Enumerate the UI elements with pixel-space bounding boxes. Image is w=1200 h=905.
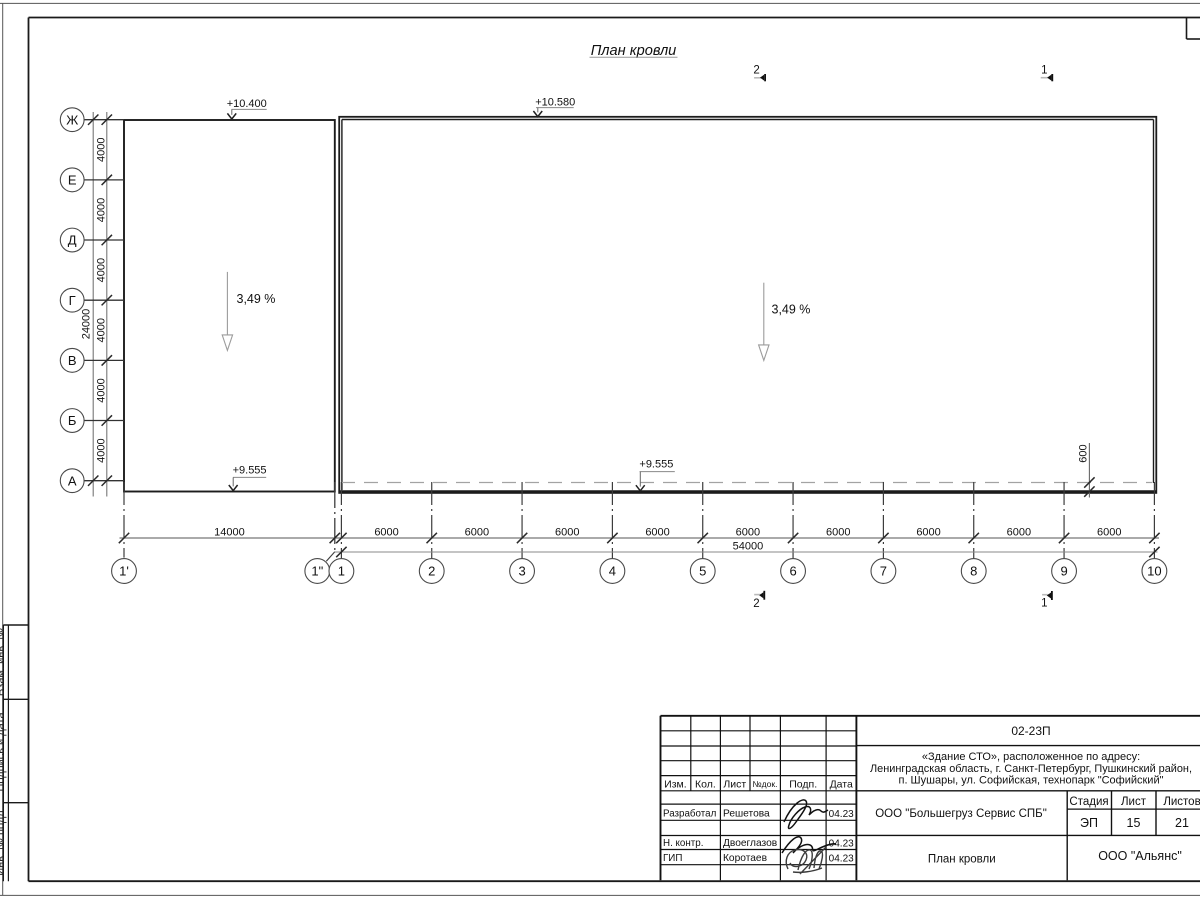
- svg-text:+10.580: +10.580: [535, 97, 575, 109]
- svg-text:8: 8: [970, 564, 977, 579]
- svg-text:2: 2: [753, 598, 759, 610]
- svg-text:4000: 4000: [95, 438, 107, 462]
- svg-text:Листов: Листов: [1163, 796, 1200, 808]
- svg-text:ООО "Альянс": ООО "Альянс": [1098, 849, 1182, 863]
- svg-text:Ленинградская область, г. Санк: Ленинградская область, г. Санкт-Петербур…: [870, 763, 1192, 775]
- svg-text:В: В: [68, 353, 77, 368]
- svg-text:4000: 4000: [95, 378, 107, 402]
- svg-text:24000: 24000: [80, 309, 92, 340]
- svg-text:Ж: Ж: [66, 112, 78, 127]
- svg-text:6000: 6000: [645, 526, 669, 538]
- svg-text:Е: Е: [68, 172, 77, 187]
- svg-text:Дата: Дата: [830, 779, 853, 791]
- svg-text:4000: 4000: [95, 318, 107, 342]
- svg-text:1': 1': [119, 564, 129, 579]
- svg-text:+9.555: +9.555: [639, 459, 673, 471]
- svg-text:3,49 %: 3,49 %: [772, 303, 811, 317]
- svg-text:Стадия: Стадия: [1069, 796, 1108, 808]
- svg-text:10: 10: [1147, 564, 1161, 579]
- svg-text:План кровли: План кровли: [928, 853, 996, 865]
- svg-text:15: 15: [1127, 816, 1141, 830]
- svg-text:Решетова: Решетова: [723, 808, 770, 819]
- svg-text:Н. контр.: Н. контр.: [663, 838, 703, 849]
- svg-text:6000: 6000: [736, 526, 760, 538]
- svg-text:7: 7: [880, 564, 887, 579]
- svg-text:Лист: Лист: [723, 779, 746, 791]
- svg-text:4000: 4000: [95, 198, 107, 222]
- svg-text:Коротаев: Коротаев: [723, 853, 767, 864]
- svg-text:6000: 6000: [555, 526, 579, 538]
- svg-text:1: 1: [338, 564, 345, 579]
- svg-text:54000: 54000: [733, 540, 764, 552]
- svg-text:+10.400: +10.400: [227, 98, 267, 110]
- svg-text:600: 600: [1078, 444, 1090, 462]
- svg-text:1: 1: [1041, 65, 1047, 77]
- svg-text:Разработал: Разработал: [663, 808, 717, 819]
- svg-text:+9.555: +9.555: [233, 465, 267, 477]
- svg-text:5: 5: [699, 564, 706, 579]
- svg-text:Лист: Лист: [1121, 796, 1147, 808]
- svg-text:2: 2: [753, 65, 759, 77]
- svg-text:Изм.: Изм.: [664, 779, 687, 791]
- svg-text:2: 2: [428, 564, 435, 579]
- svg-text:ГИП: ГИП: [663, 853, 682, 864]
- svg-text:6000: 6000: [1097, 526, 1121, 538]
- svg-text:Инв. № подл.: Инв. № подл.: [0, 807, 7, 876]
- svg-text:6000: 6000: [465, 526, 489, 538]
- svg-text:ЭП: ЭП: [1080, 816, 1098, 830]
- svg-text:«Здание СТО», расположенное по: «Здание СТО», расположенное по адресу:: [922, 751, 1140, 763]
- svg-text:6000: 6000: [826, 526, 850, 538]
- svg-text:3,49 %: 3,49 %: [237, 292, 276, 306]
- svg-text:6000: 6000: [1007, 526, 1031, 538]
- svg-text:Подпись и дата: Подпись и дата: [0, 712, 7, 792]
- svg-text:План кровли: План кровли: [591, 43, 677, 59]
- svg-text:4: 4: [609, 564, 616, 579]
- svg-text:02-23П: 02-23П: [1011, 724, 1050, 738]
- svg-text:Взам. инв. №: Взам. инв. №: [0, 628, 7, 696]
- svg-text:9: 9: [1060, 564, 1067, 579]
- svg-text:Д: Д: [68, 233, 77, 248]
- svg-text:1": 1": [311, 564, 323, 579]
- svg-text:Подп.: Подп.: [789, 779, 817, 791]
- svg-text:6000: 6000: [916, 526, 940, 538]
- svg-text:4000: 4000: [95, 258, 107, 282]
- svg-text:1: 1: [1041, 598, 1047, 610]
- svg-text:14000: 14000: [214, 526, 245, 538]
- svg-text:6: 6: [789, 564, 796, 579]
- svg-text:п. Шушары, ул. Софийская, техн: п. Шушары, ул. Софийская, технопарк "Соф…: [898, 775, 1163, 787]
- svg-text:04.23: 04.23: [829, 854, 854, 865]
- svg-text:А: А: [68, 473, 77, 488]
- svg-text:21: 21: [1175, 816, 1189, 830]
- svg-text:Двоеглазов: Двоеглазов: [723, 838, 777, 849]
- svg-text:Г: Г: [69, 293, 76, 308]
- svg-text:04.23: 04.23: [829, 809, 854, 820]
- svg-text:4000: 4000: [95, 138, 107, 162]
- svg-text:ООО "Большегруз Сервис СПБ": ООО "Большегруз Сервис СПБ": [875, 808, 1047, 820]
- svg-text:№док.: №док.: [753, 779, 778, 789]
- svg-text:Б: Б: [68, 413, 77, 428]
- svg-text:3: 3: [518, 564, 525, 579]
- svg-text:Кол.: Кол.: [695, 779, 716, 791]
- svg-text:6000: 6000: [374, 526, 398, 538]
